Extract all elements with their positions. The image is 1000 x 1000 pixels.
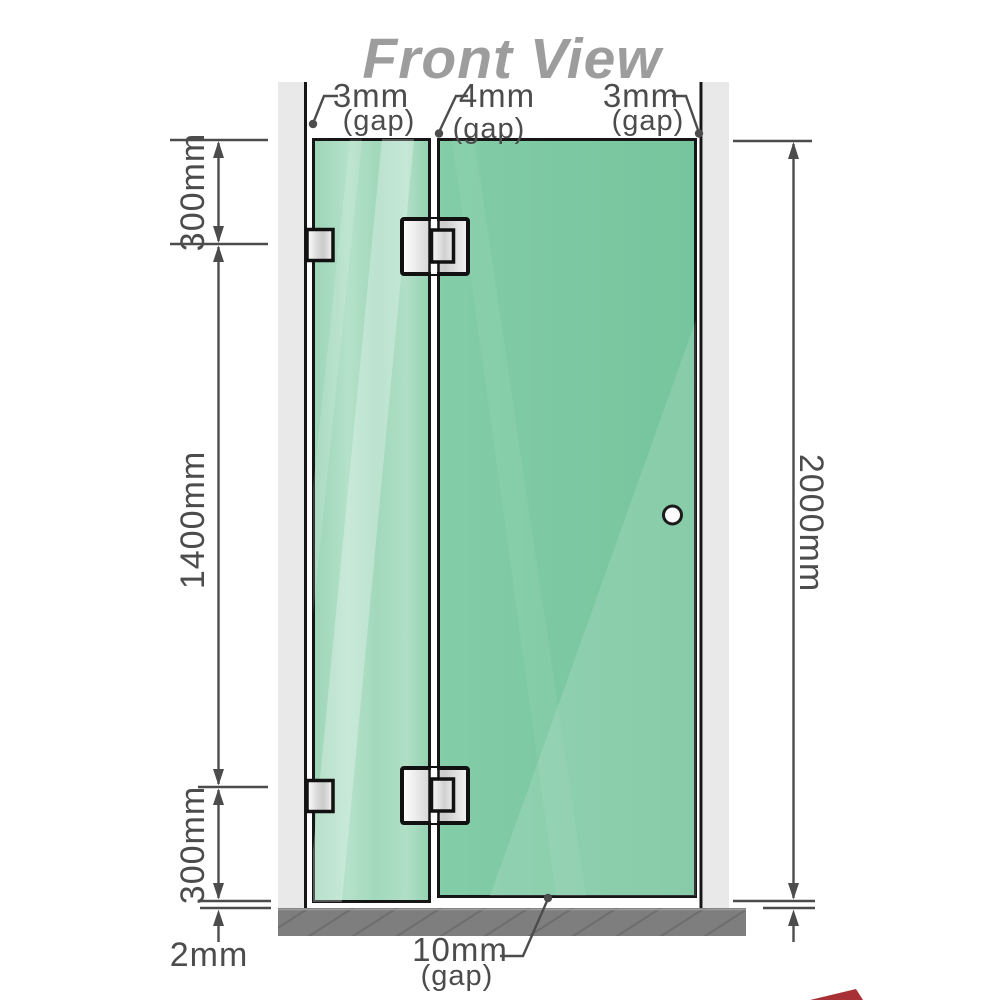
shower-screen-drawing: 300mm 1400mm 300mm 2mm 2000mm 3mm (gap) … bbox=[0, 0, 1000, 1000]
diagram-title: Front View bbox=[362, 27, 664, 91]
door-glass-panel bbox=[439, 139, 697, 897]
right-wall bbox=[701, 82, 729, 908]
hinge-top bbox=[402, 219, 468, 274]
leader-dot bbox=[309, 120, 317, 128]
left-wall bbox=[278, 82, 306, 908]
leader-dot bbox=[435, 129, 443, 137]
gap-top-left-suffix: (gap) bbox=[343, 105, 416, 137]
dim-left-bottom-label: 300mm bbox=[174, 786, 212, 904]
dim-left-middle-label: 1400mm bbox=[174, 451, 212, 589]
front-view-diagram: 300mm 1400mm 300mm 2mm 2000mm 3mm (gap) … bbox=[0, 0, 1000, 1000]
dim-left-top-label: 300mm bbox=[174, 133, 212, 251]
watermark-fragment bbox=[810, 989, 863, 1000]
wall-bracket-top bbox=[307, 230, 333, 261]
dim-floor-gap-label: 2mm bbox=[170, 936, 249, 974]
gap-bottom-suffix: (gap) bbox=[421, 960, 494, 992]
wall-bracket-bottom bbox=[307, 781, 333, 812]
leader-dot bbox=[544, 894, 552, 902]
hinge-bottom bbox=[402, 768, 468, 823]
gap-top-middle-suffix: (gap) bbox=[453, 113, 526, 145]
gap-top-right-suffix: (gap) bbox=[612, 105, 685, 137]
dim-right-height-label: 2000mm bbox=[792, 454, 830, 592]
leader-dot bbox=[695, 129, 703, 137]
door-knob bbox=[664, 506, 682, 524]
